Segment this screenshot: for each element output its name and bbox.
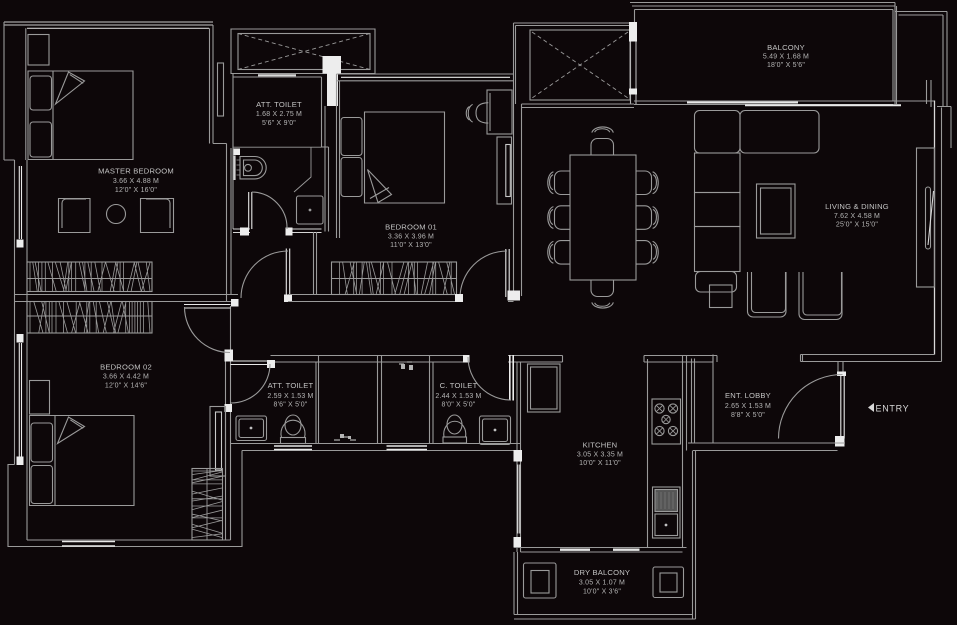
svg-text:KITCHEN: KITCHEN: [583, 441, 618, 450]
svg-text:ATT. TOILET: ATT. TOILET: [268, 381, 314, 390]
svg-text:LIVING & DINING: LIVING & DINING: [825, 202, 889, 211]
svg-text:2.44 X 1.53 M: 2.44 X 1.53 M: [435, 393, 481, 400]
svg-text:5.49 X 1.68 M: 5.49 X 1.68 M: [763, 54, 809, 61]
svg-text:ENT. LOBBY: ENT. LOBBY: [725, 391, 771, 400]
svg-text:2.65 X 1.53 M: 2.65 X 1.53 M: [725, 403, 771, 410]
svg-text:3.05 X 1.07 M: 3.05 X 1.07 M: [579, 580, 625, 587]
svg-text:3.66 X 4.88 M: 3.66 X 4.88 M: [113, 178, 159, 185]
svg-text:1.68 X 2.75 M: 1.68 X 2.75 M: [256, 111, 302, 118]
svg-text:8'8" X 5'0": 8'8" X 5'0": [731, 412, 765, 419]
svg-text:ENTRY: ENTRY: [876, 404, 910, 414]
svg-text:3.66 X 4.42 M: 3.66 X 4.42 M: [103, 374, 149, 381]
svg-text:8'6" X 5'0": 8'6" X 5'0": [274, 402, 308, 409]
svg-text:3.36 X 3.96 M: 3.36 X 3.96 M: [388, 234, 434, 241]
svg-text:11'0" X 13'0": 11'0" X 13'0": [390, 242, 432, 249]
svg-text:5'6" X 9'0": 5'6" X 9'0": [262, 120, 296, 127]
svg-text:18'0" X 5'6": 18'0" X 5'6": [767, 62, 805, 69]
svg-text:BEDROOM 02: BEDROOM 02: [100, 363, 152, 372]
svg-text:BALCONY: BALCONY: [767, 43, 805, 52]
svg-text:3.05 X 3.35 M: 3.05 X 3.35 M: [577, 452, 623, 459]
svg-text:2.59 X 1.53 M: 2.59 X 1.53 M: [267, 393, 313, 400]
svg-text:10'0" X 11'0": 10'0" X 11'0": [579, 460, 621, 467]
svg-text:12'0" X 14'6": 12'0" X 14'6": [105, 383, 147, 390]
svg-text:DRY BALCONY: DRY BALCONY: [574, 568, 630, 577]
svg-text:7.62 X 4.58 M: 7.62 X 4.58 M: [834, 213, 880, 220]
svg-text:8'0" X 5'0": 8'0" X 5'0": [442, 402, 476, 409]
svg-text:MASTER BEDROOM: MASTER BEDROOM: [98, 167, 174, 176]
svg-text:BEDROOM 01: BEDROOM 01: [385, 223, 437, 232]
svg-text:25'0" X 15'0": 25'0" X 15'0": [836, 222, 878, 229]
svg-text:12'0" X 16'0": 12'0" X 16'0": [115, 187, 157, 194]
svg-text:10'0" X 3'6": 10'0" X 3'6": [583, 589, 621, 596]
svg-text:C. TOILET: C. TOILET: [440, 381, 478, 390]
svg-text:ATT. TOILET: ATT. TOILET: [256, 100, 302, 109]
